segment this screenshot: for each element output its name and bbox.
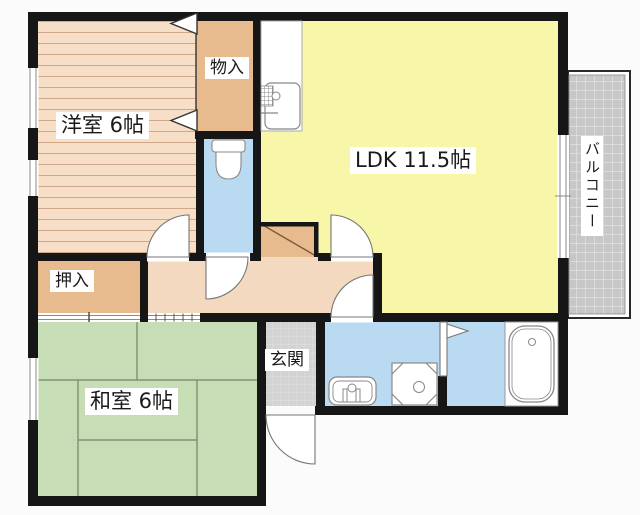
kitchen-counter bbox=[261, 21, 302, 131]
window-western-2 bbox=[28, 160, 39, 196]
kitchen-sink-icon bbox=[261, 83, 300, 129]
label-western-room: 洋室 6帖 bbox=[56, 112, 149, 139]
floor-plan: 洋室 6帖 物入 LDK 11.5帖 バルコニー 押入 和室 6帖 玄関 bbox=[0, 0, 640, 515]
bathtub-icon bbox=[505, 322, 558, 406]
shoe-cabinet-icon bbox=[261, 222, 319, 257]
window-western-1 bbox=[28, 68, 39, 128]
label-balcony: バルコニー bbox=[581, 136, 603, 236]
front-door bbox=[266, 415, 315, 464]
window-japanese-room bbox=[28, 358, 39, 420]
balcony-sliding-door bbox=[555, 135, 571, 258]
washbasin-icon bbox=[329, 377, 376, 405]
label-entrance: 玄関 bbox=[265, 349, 309, 371]
label-oshiire: 押入 bbox=[50, 270, 94, 292]
label-monoire: 物入 bbox=[205, 57, 249, 79]
washing-machine-pan-icon bbox=[392, 363, 437, 405]
label-ldk: LDK 11.5帖 bbox=[350, 147, 476, 174]
label-japanese-room: 和室 6帖 bbox=[85, 388, 178, 415]
floor-plan-drawing bbox=[0, 0, 640, 515]
